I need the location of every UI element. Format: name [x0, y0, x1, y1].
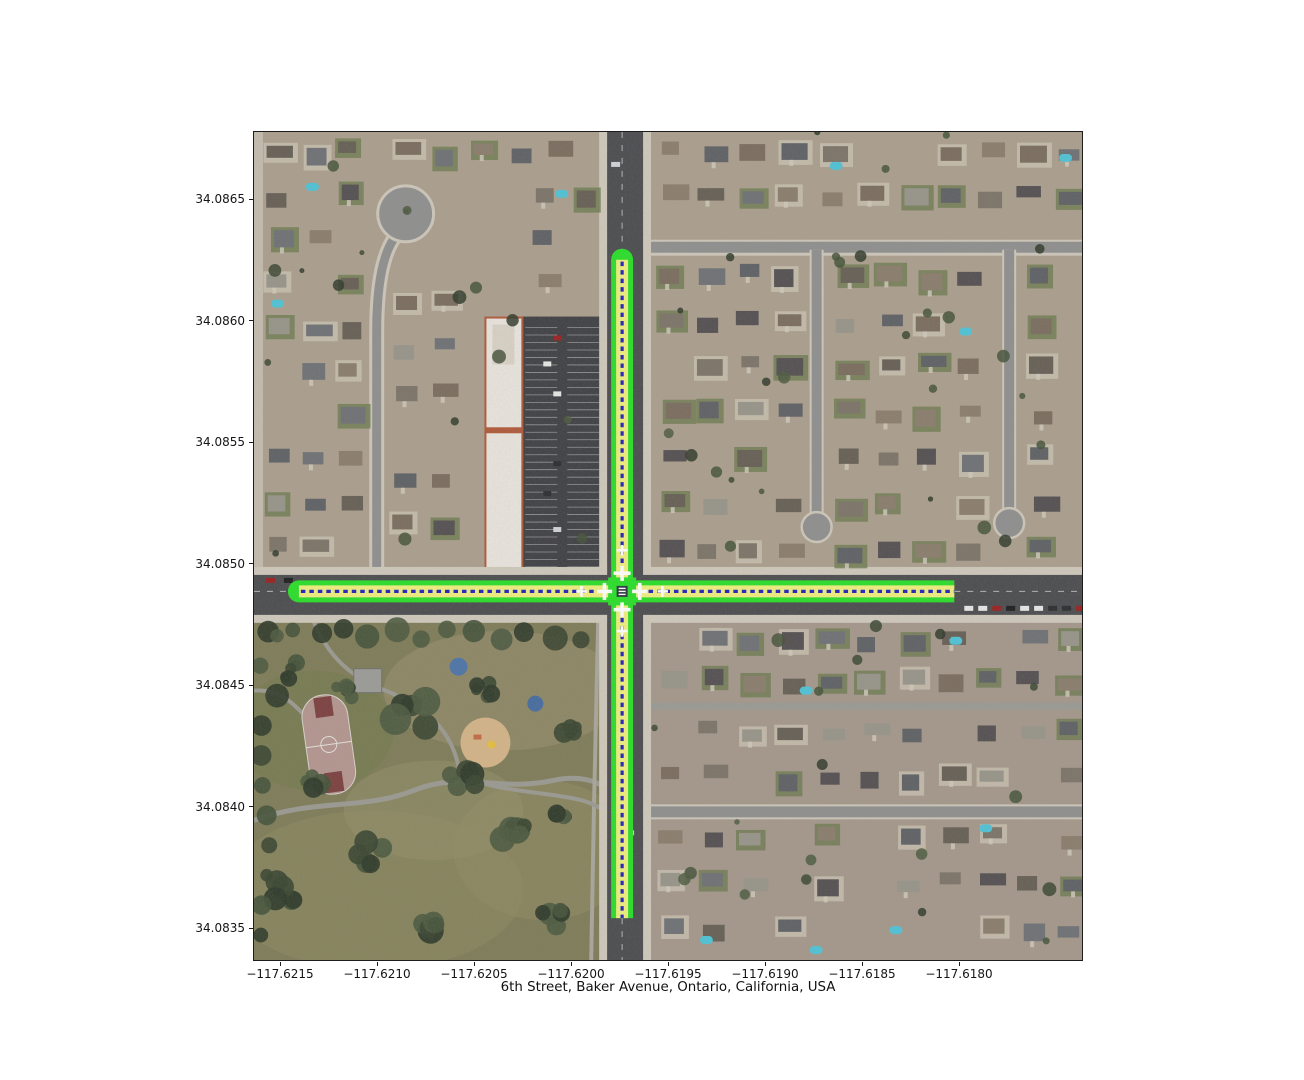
x-tick-mark [765, 962, 766, 966]
y-tick-mark [249, 806, 253, 807]
x-tick-mark [571, 962, 572, 966]
x-tick-mark [474, 962, 475, 966]
x-tick-mark [668, 962, 669, 966]
x-tick-mark [280, 962, 281, 966]
y-tick-label: 34.0840 [171, 801, 245, 813]
x-tick-label: −117.6200 [537, 968, 604, 980]
y-tick-mark [249, 199, 253, 200]
x-tick-label: −117.6210 [343, 968, 410, 980]
x-tick-mark [959, 962, 960, 966]
y-tick-mark [249, 442, 253, 443]
photo-grain [254, 132, 1082, 960]
aerial-map-image [254, 132, 1082, 960]
y-tick-mark [249, 563, 253, 564]
y-tick-mark [249, 685, 253, 686]
y-tick-label: 34.0845 [171, 679, 245, 691]
y-tick-label: 34.0850 [171, 558, 245, 570]
matplotlib-figure: −117.6215−117.6210−117.6205−117.6200−117… [0, 0, 1304, 1080]
y-tick-mark [249, 928, 253, 929]
y-tick-label: 34.0860 [171, 315, 245, 327]
x-tick-label: −117.6205 [440, 968, 507, 980]
x-tick-label: −117.6195 [634, 968, 701, 980]
x-tick-label: −117.6180 [925, 968, 992, 980]
x-tick-label: −117.6185 [828, 968, 895, 980]
x-tick-mark [862, 962, 863, 966]
y-tick-label: 34.0855 [171, 436, 245, 448]
map-axes [253, 131, 1083, 961]
y-tick-label: 34.0835 [171, 922, 245, 934]
x-tick-label: −117.6215 [246, 968, 313, 980]
x-tick-label: −117.6190 [731, 968, 798, 980]
y-tick-mark [249, 320, 253, 321]
y-tick-label: 34.0865 [171, 193, 245, 205]
x-tick-mark [377, 962, 378, 966]
plot-title: 6th Street, Baker Avenue, Ontario, Calif… [253, 980, 1083, 995]
